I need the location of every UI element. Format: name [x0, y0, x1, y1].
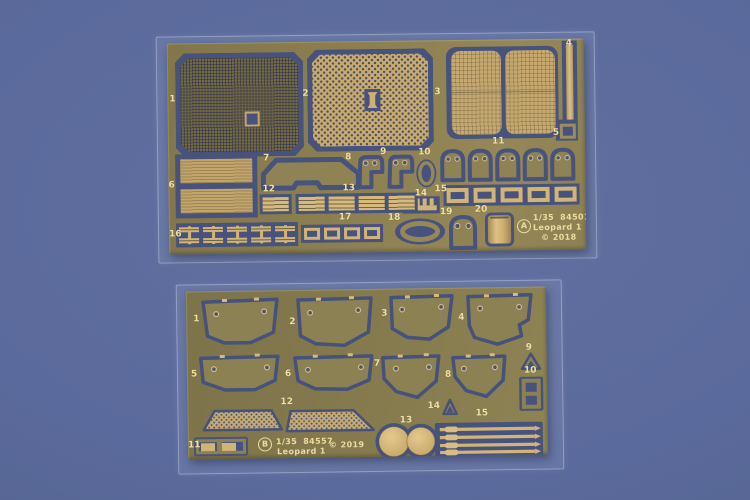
- part-label-a17: 17: [339, 212, 352, 222]
- part-a17-frame: [324, 227, 340, 239]
- fret-a-scale: 1/35: [533, 213, 554, 222]
- part-label-a4: 4: [566, 39, 572, 49]
- part-b13-discs: [375, 423, 439, 460]
- part-a13-ladder-plate: [359, 196, 385, 210]
- fret-a-badge: A: [517, 219, 531, 233]
- part-label-b1: 1: [193, 314, 199, 324]
- part-label-b9: 9: [526, 343, 532, 353]
- pe-fret-a: A 1/3584501 Leopard 1 © 2018 1 2 3 4 5 6…: [167, 38, 587, 254]
- pe-fret-b: B 1/3584557 Leopard 1 © 2019 1 2 3 4 5 6…: [186, 286, 548, 459]
- part-a18-oval-frame: [395, 218, 445, 245]
- part-label-a13: 13: [342, 183, 355, 193]
- part-b-skirt-plates: [200, 295, 532, 401]
- part-label-a7: 7: [263, 153, 269, 163]
- part-label-a9: 9: [380, 147, 386, 157]
- part-b15-tow-cables: [435, 422, 543, 459]
- part-a15-frame: [555, 187, 577, 202]
- fret-b-badge: B: [258, 437, 272, 451]
- part-label-a11: 11: [492, 136, 505, 146]
- fret-a-kit-name: Leopard 1: [533, 222, 582, 233]
- part-label-a2: 2: [302, 89, 308, 99]
- part-label-a3: 3: [434, 87, 440, 97]
- part-a15-frame: [474, 188, 496, 203]
- part-a16-clamp: [251, 225, 271, 243]
- part-label-b2: 2: [289, 317, 295, 327]
- part-b11-frame-blocks: [194, 437, 248, 457]
- part-a17-frame: [364, 227, 380, 239]
- part-a13-ladder-plate: [389, 196, 415, 210]
- part-a13-ladder-plate: [329, 196, 355, 210]
- part-label-a20: 20: [475, 205, 488, 215]
- part-a11-arch-plates: [442, 150, 573, 181]
- part-label-a1: 1: [169, 94, 175, 104]
- part-label-b6: 6: [285, 369, 291, 379]
- part-a17-frame: [344, 227, 360, 239]
- part-a16-clamp: [275, 225, 295, 243]
- part-label-b12: 12: [280, 397, 293, 407]
- fret-a-copyright: © 2018: [541, 233, 577, 243]
- part-label-b14: 14: [427, 401, 440, 411]
- part-b12-mesh-grilles: [204, 409, 374, 432]
- part-label-b7: 7: [374, 359, 380, 369]
- part-a16-clamp: [203, 226, 223, 244]
- part-a16-clamp: [227, 226, 247, 244]
- part-label-a10: 10: [418, 147, 431, 157]
- part-label-b15: 15: [476, 408, 489, 418]
- part-a13-ladder-plate: [299, 197, 325, 211]
- part-label-a6: 6: [168, 180, 174, 190]
- part-b10-ladder-bracket: [519, 377, 543, 411]
- part-label-b10: 10: [524, 366, 537, 376]
- fret-b-copyright: © 2019: [329, 440, 365, 450]
- part-a17-frame: [304, 228, 320, 240]
- part-a10-oval-ring: [416, 159, 436, 187]
- part-label-b13: 13: [400, 415, 413, 425]
- part-label-b8: 8: [445, 370, 451, 380]
- part-a19-arch-plate: [451, 217, 475, 248]
- part-label-b4: 4: [458, 313, 464, 323]
- part-label-a5: 5: [553, 128, 559, 138]
- fret-b-scale: 1/35: [276, 437, 297, 446]
- part-label-a18: 18: [388, 213, 401, 223]
- part-a20-canister: [488, 215, 511, 243]
- part-label-a19: 19: [440, 207, 453, 217]
- photo-backdrop: { "colors": { "background": "#5b6a9c", "…: [0, 0, 750, 500]
- fret-a-code: 84501: [560, 212, 586, 221]
- part-label-a14: 14: [415, 188, 428, 198]
- part-label-a8: 8: [345, 152, 351, 162]
- fret-b-kit-name: Leopard 1: [277, 447, 326, 458]
- part-b14-a-frame: [443, 400, 456, 414]
- part-label-b5: 5: [191, 369, 197, 379]
- part-a15-frame: [447, 188, 469, 203]
- part-a15-frame: [528, 187, 550, 202]
- part-label-b3: 3: [381, 309, 387, 319]
- part-label-a15: 15: [434, 184, 447, 194]
- part-a15-frame: [501, 187, 523, 202]
- part-label-a12: 12: [262, 184, 275, 194]
- part-label-a16: 16: [169, 229, 182, 239]
- fret-a-scale-code: 1/3584501: [533, 212, 586, 223]
- part-a12-ladder-plate: [263, 197, 289, 211]
- part-label-b11: 11: [188, 440, 201, 450]
- part-a9-hook-bracket: [389, 157, 412, 187]
- fret-b-etched-parts: [186, 286, 548, 459]
- part-a8-hook-bracket: [359, 157, 382, 187]
